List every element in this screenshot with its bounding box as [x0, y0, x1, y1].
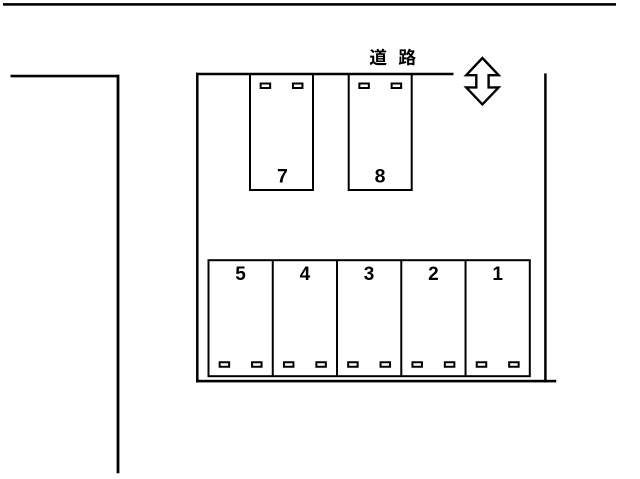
- svg-text:4: 4: [300, 264, 311, 285]
- svg-text:1: 1: [492, 264, 503, 285]
- svg-text:8: 8: [375, 166, 386, 188]
- svg-text:3: 3: [364, 264, 375, 285]
- svg-text:7: 7: [277, 166, 288, 188]
- svg-text:2: 2: [428, 264, 439, 285]
- svg-text:5: 5: [235, 264, 246, 285]
